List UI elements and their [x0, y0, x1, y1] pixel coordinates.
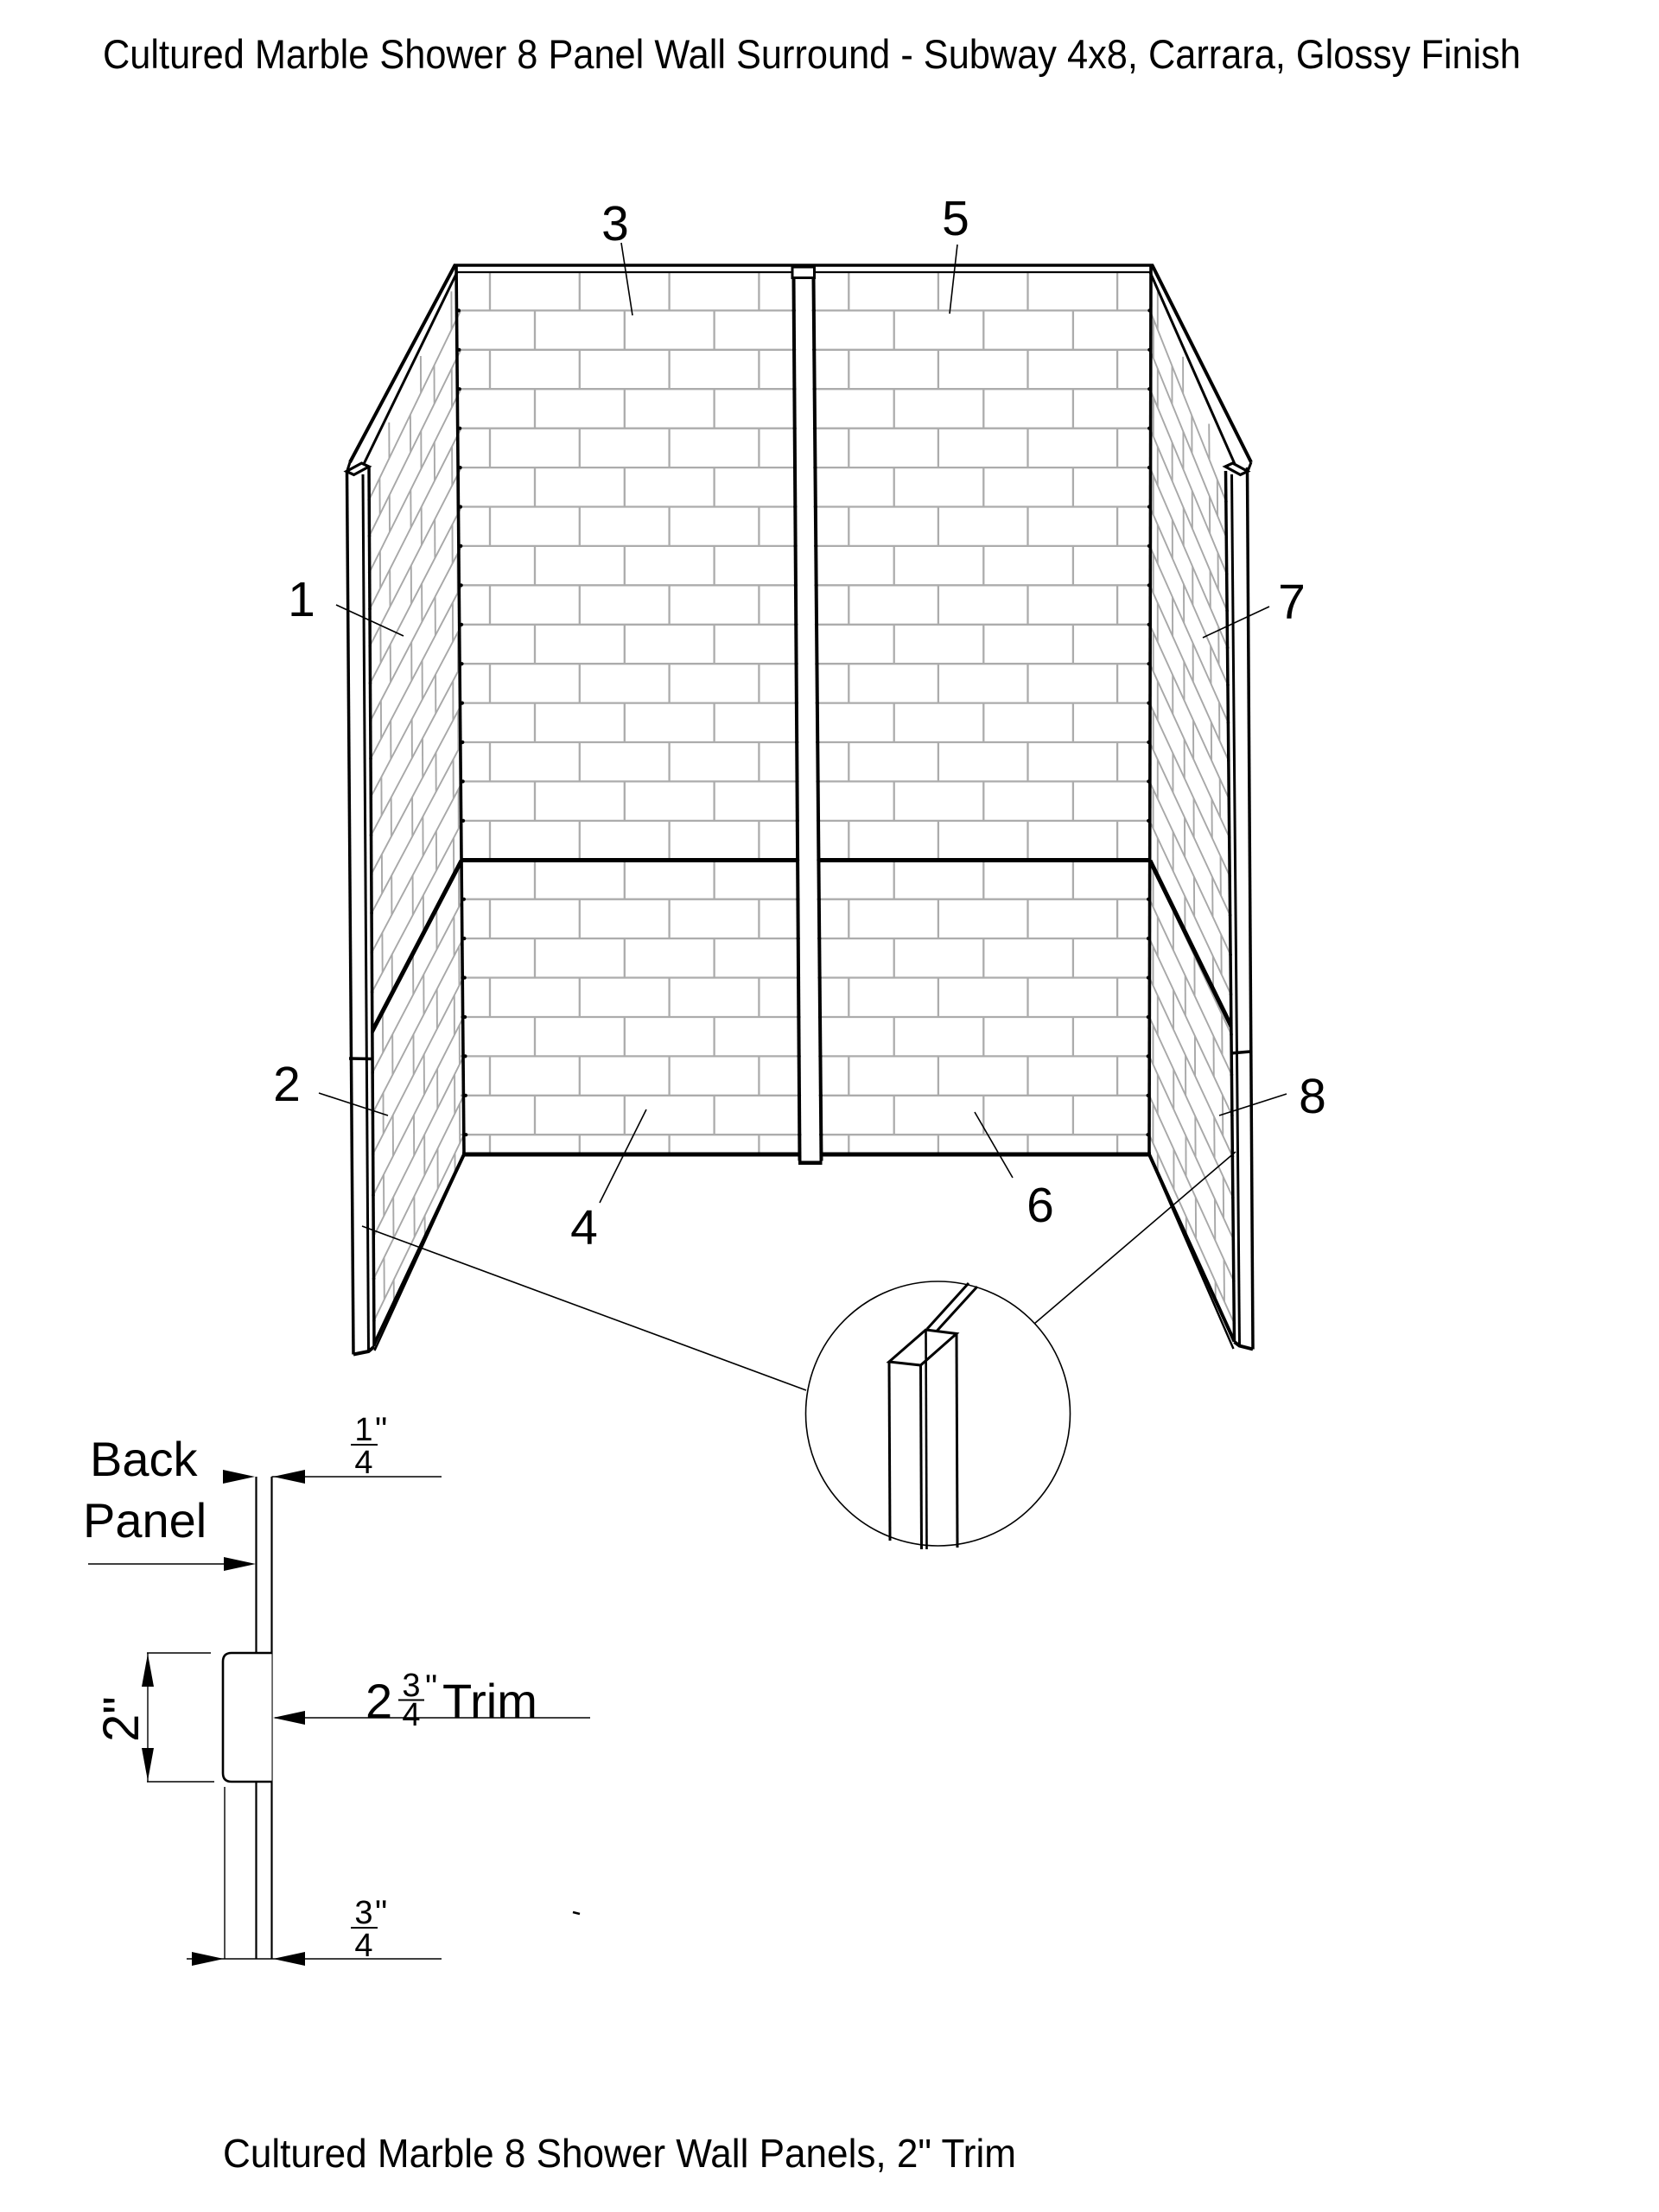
svg-text:3: 3 — [601, 196, 629, 251]
svg-text:Trim: Trim — [442, 1674, 537, 1728]
svg-text:7: 7 — [1278, 575, 1306, 630]
svg-text:Back: Back — [90, 1432, 198, 1486]
svg-text:3: 3 — [354, 1895, 372, 1931]
svg-text:4: 4 — [402, 1697, 420, 1733]
svg-text:5: 5 — [942, 191, 969, 246]
svg-text:4: 4 — [570, 1200, 598, 1255]
svg-text:": " — [375, 1894, 387, 1932]
svg-text:1: 1 — [354, 1412, 372, 1448]
svg-text:4: 4 — [354, 1928, 372, 1964]
svg-text:2: 2 — [273, 1057, 301, 1112]
svg-text:6: 6 — [1027, 1178, 1054, 1233]
svg-text:Cultured Marble 8 Shower Wall: Cultured Marble 8 Shower Wall Panels, 2"… — [223, 2131, 1016, 2176]
svg-text:2: 2 — [365, 1674, 392, 1728]
svg-text:": " — [375, 1411, 387, 1449]
svg-text:4: 4 — [354, 1445, 372, 1481]
svg-text:": " — [425, 1669, 437, 1707]
svg-text:Panel: Panel — [83, 1493, 207, 1548]
svg-text:2": 2" — [93, 1696, 149, 1742]
svg-text:Cultured Marble Shower 8 Panel: Cultured Marble Shower 8 Panel Wall Surr… — [103, 31, 1521, 77]
svg-text:8: 8 — [1299, 1069, 1326, 1124]
svg-text:1: 1 — [288, 572, 315, 627]
